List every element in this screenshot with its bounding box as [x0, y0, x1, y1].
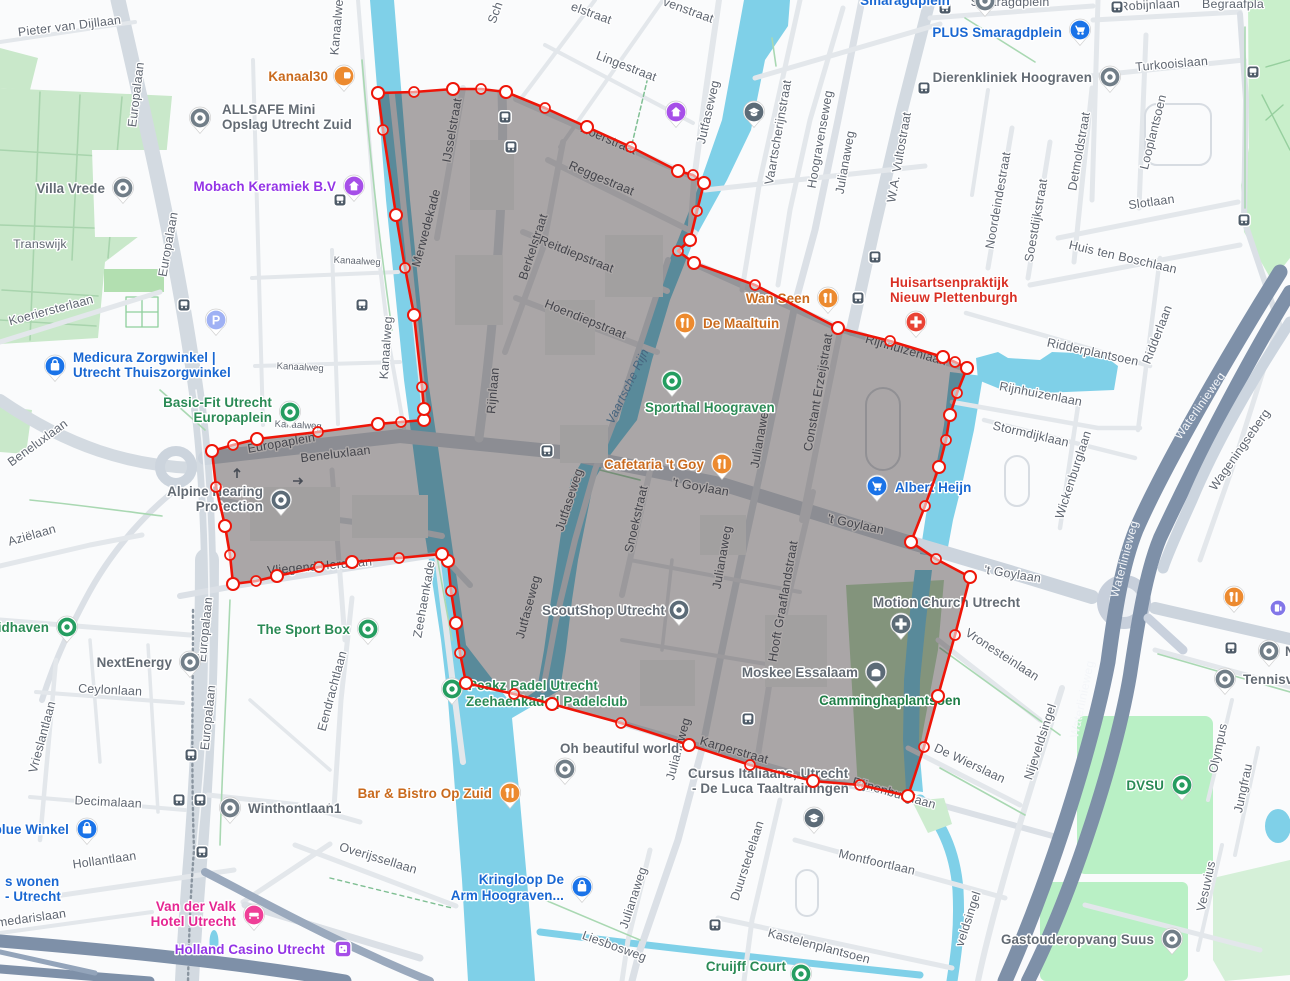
svg-text:Hotel Utrecht: Hotel Utrecht — [151, 914, 237, 929]
svg-text:DVSU: DVSU — [1126, 778, 1164, 793]
svg-text:Kringloop De: Kringloop De — [479, 872, 564, 887]
svg-text:Opslag Utrecht Zuid: Opslag Utrecht Zuid — [222, 117, 352, 132]
svg-text:Begraafpla: Begraafpla — [1202, 0, 1264, 11]
svg-text:Cafetaria 't Goy: Cafetaria 't Goy — [604, 457, 704, 472]
svg-text:Wan Seen: Wan Seen — [746, 291, 810, 306]
svg-text:Van der Valk: Van der Valk — [156, 899, 237, 914]
svg-text:ScoutShop Utrecht: ScoutShop Utrecht — [542, 603, 665, 618]
svg-text:Huisartsenpraktijk: Huisartsenpraktijk — [890, 275, 1009, 290]
svg-text:Oh beautiful world: Oh beautiful world — [560, 741, 679, 756]
svg-text:Sporthal Hoograven: Sporthal Hoograven — [645, 400, 775, 415]
svg-text:Tennisve: Tennisve — [1243, 672, 1290, 687]
svg-text:Utrecht Thuiszorgwinkel: Utrecht Thuiszorgwinkel — [73, 365, 231, 380]
svg-text:Gastouderopvang Suus: Gastouderopvang Suus — [1001, 932, 1154, 947]
svg-text:s wonen: s wonen — [5, 874, 59, 889]
svg-text:Bar & Bistro Op Zuid: Bar & Bistro Op Zuid — [358, 786, 492, 801]
svg-text:Mobach Keramiek B.V: Mobach Keramiek B.V — [193, 179, 336, 194]
svg-text:Kanaal30: Kanaal30 — [268, 69, 328, 84]
svg-text:Smaragdplein: Smaragdplein — [860, 0, 950, 8]
svg-text:NextEnergy: NextEnergy — [97, 655, 173, 670]
svg-text:Peakz Padel Utrecht: Peakz Padel Utrecht — [468, 678, 598, 693]
svg-text:The Sport Box: The Sport Box — [257, 622, 350, 637]
svg-text:Moskee Essalaam: Moskee Essalaam — [742, 665, 858, 680]
svg-text:idhaven: idhaven — [0, 620, 49, 635]
svg-text:De Maaltuin: De Maaltuin — [703, 316, 779, 331]
svg-text:Cursus Italiaans, Utrecht: Cursus Italiaans, Utrecht — [688, 766, 849, 781]
svg-text:blue Winkel: blue Winkel — [0, 822, 69, 837]
svg-text:Basic-Fit Utrecht: Basic-Fit Utrecht — [163, 395, 272, 410]
svg-text:Transwijk: Transwijk — [13, 237, 67, 251]
svg-text:ALLSAFE Mini: ALLSAFE Mini — [222, 102, 315, 117]
svg-text:Villa Vrede: Villa Vrede — [36, 181, 105, 196]
svg-text:Dierenkliniek Hoograven: Dierenkliniek Hoograven — [933, 70, 1092, 85]
svg-text:Medicura Zorgwinkel |: Medicura Zorgwinkel | — [73, 350, 216, 365]
svg-text:Motion Church Utrecht: Motion Church Utrecht — [873, 595, 1021, 610]
svg-text:Nieuw Plettenburgh: Nieuw Plettenburgh — [890, 290, 1018, 305]
svg-text:- Utrecht: - Utrecht — [5, 889, 61, 904]
svg-text:N: N — [1285, 644, 1290, 659]
svg-text:Arm Hoograven...: Arm Hoograven... — [451, 888, 564, 903]
svg-text:Holland Casino Utrecht: Holland Casino Utrecht — [175, 942, 326, 957]
svg-text:P: P — [212, 314, 220, 328]
svg-text:Protection: Protection — [196, 499, 263, 514]
svg-text:Winthontlaan1: Winthontlaan1 — [248, 801, 342, 816]
svg-text:Cruijff Court: Cruijff Court — [706, 959, 787, 974]
svg-text:Europaplein: Europaplein — [194, 410, 272, 425]
svg-text:PLUS Smaragdplein: PLUS Smaragdplein — [932, 25, 1062, 40]
